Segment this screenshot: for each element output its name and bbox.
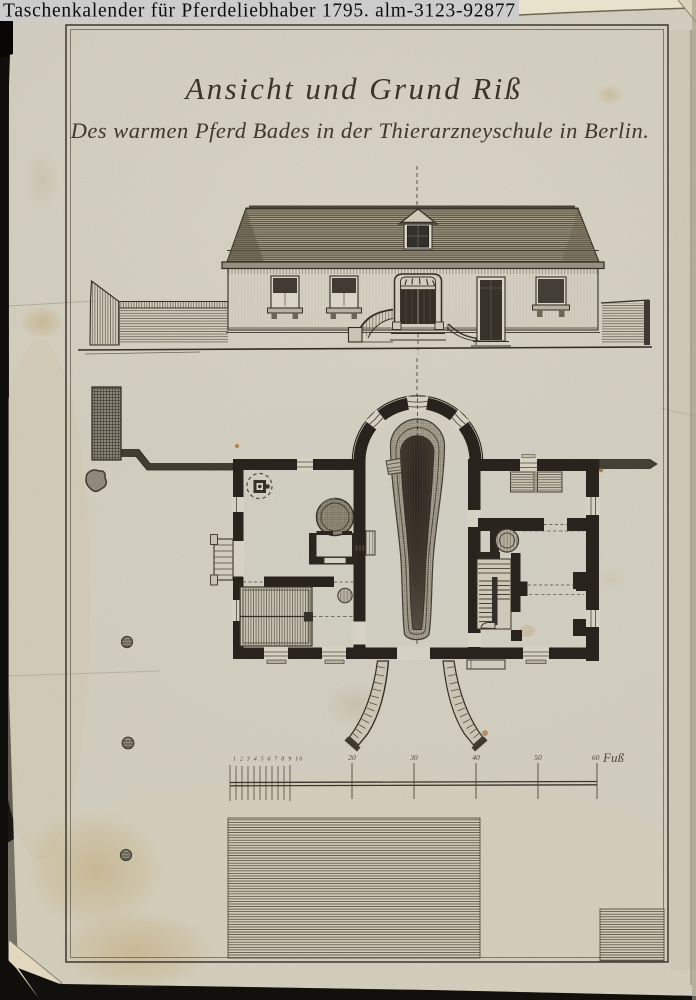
svg-text:Ansicht und Grund Riß: Ansicht und Grund Riß bbox=[183, 71, 522, 106]
svg-text:Des warmen Pferd Bades in der: Des warmen Pferd Bades in der Thierarzne… bbox=[70, 118, 650, 143]
svg-text:Taschenkalender für Pferdelieb: Taschenkalender für Pferdeliebhaber 1795… bbox=[3, 1, 515, 22]
svg-text:Fuß: Fuß bbox=[602, 750, 624, 765]
svg-text:20: 20 bbox=[348, 753, 356, 762]
svg-text:1 2 3 4 5 6 7 8 9 10: 1 2 3 4 5 6 7 8 9 10 bbox=[233, 756, 304, 763]
svg-text:50: 50 bbox=[534, 753, 542, 762]
svg-text:40: 40 bbox=[472, 753, 480, 762]
svg-text:60: 60 bbox=[592, 753, 600, 762]
svg-text:30: 30 bbox=[409, 753, 418, 762]
